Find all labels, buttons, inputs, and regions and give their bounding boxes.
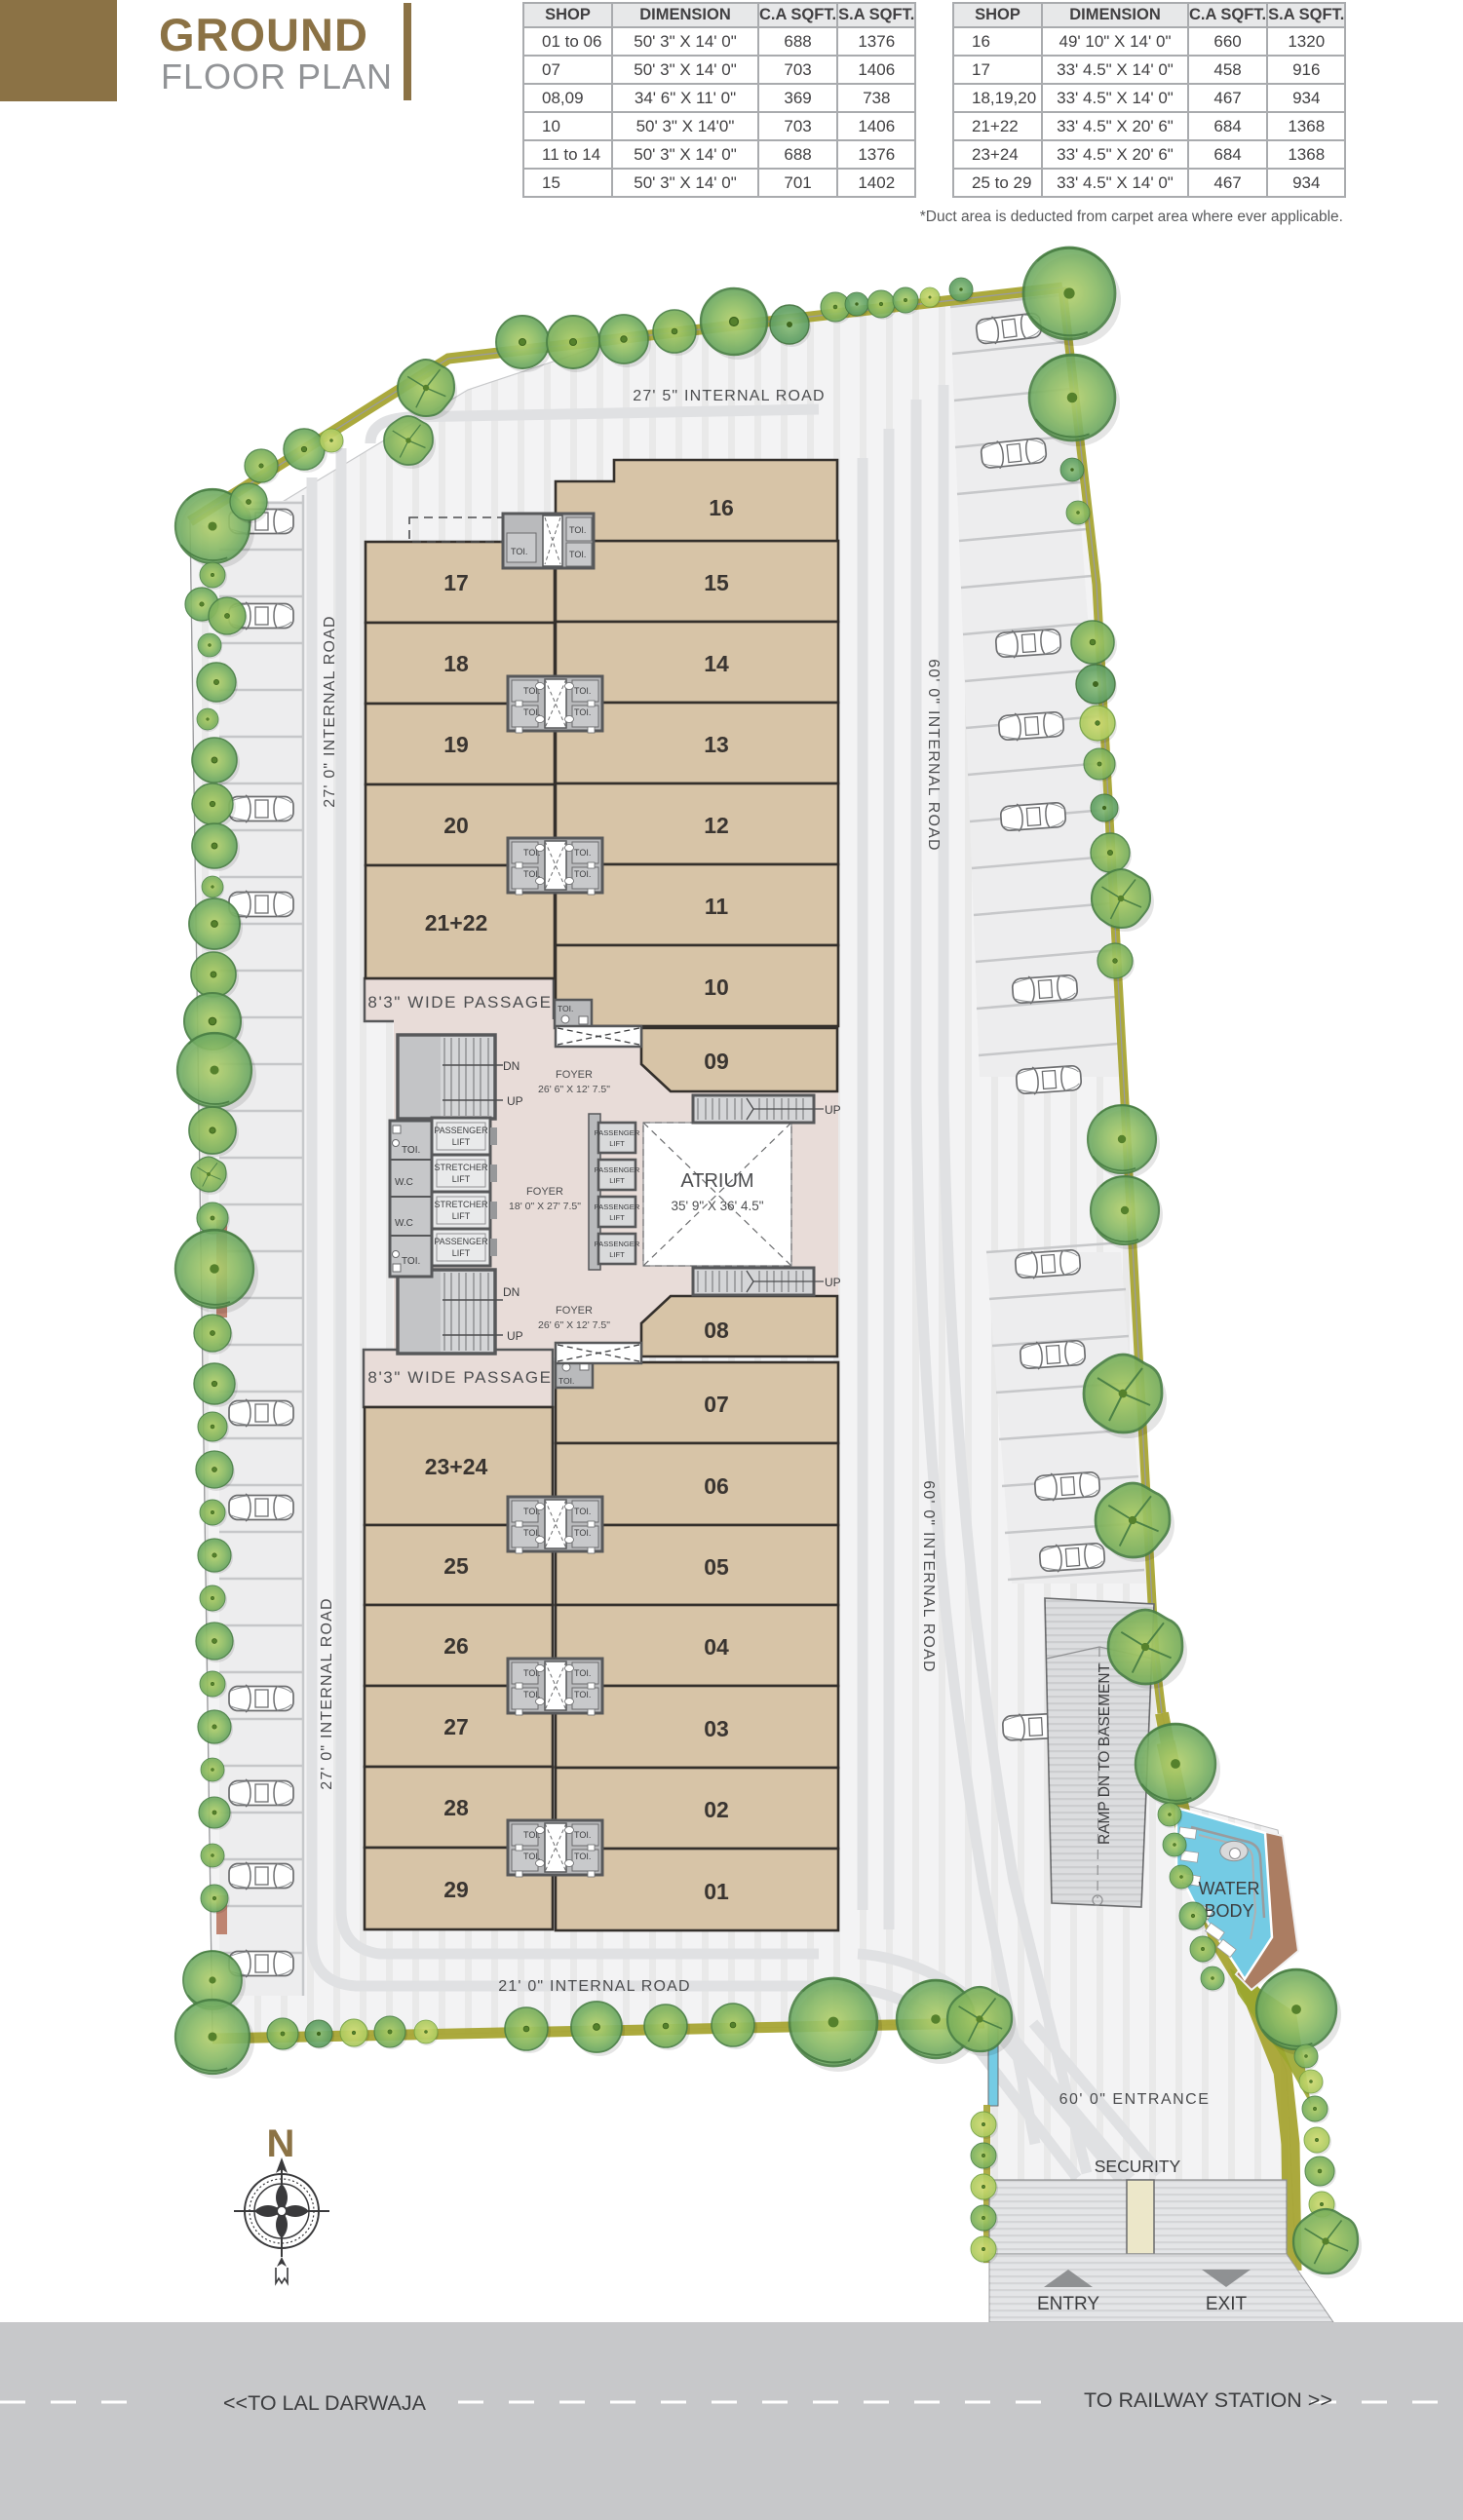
svg-text:PASSENGER: PASSENGER — [595, 1165, 640, 1174]
svg-text:TOI.: TOI. — [574, 1830, 591, 1840]
svg-text:ENTRY: ENTRY — [1037, 2294, 1099, 2314]
svg-text:26: 26 — [443, 1633, 469, 1659]
svg-text:TOI.: TOI. — [574, 848, 591, 858]
svg-text:DN: DN — [503, 1285, 520, 1299]
svg-text:TOI.: TOI. — [574, 707, 591, 717]
svg-text:TOI.: TOI. — [523, 1528, 540, 1538]
svg-text:TOI.: TOI. — [523, 707, 540, 717]
svg-text:STRETCHER: STRETCHER — [434, 1200, 488, 1209]
svg-text:FOYER: FOYER — [526, 1186, 563, 1198]
svg-text:TOI.: TOI. — [574, 1852, 591, 1861]
svg-text:12: 12 — [704, 813, 729, 838]
svg-text:15: 15 — [704, 570, 729, 595]
svg-text:25: 25 — [443, 1553, 469, 1579]
svg-text:DN: DN — [503, 1059, 520, 1073]
svg-text:10: 10 — [704, 974, 729, 1000]
svg-text:05: 05 — [704, 1554, 729, 1580]
svg-text:ATRIUM: ATRIUM — [680, 1170, 753, 1192]
svg-text:TOI.: TOI. — [523, 1830, 540, 1840]
svg-text:14: 14 — [704, 651, 729, 676]
svg-text:35' 9" X 36' 4.5": 35' 9" X 36' 4.5" — [671, 1199, 763, 1213]
svg-text:11: 11 — [705, 894, 729, 919]
svg-text:60' 0" INTERNAL ROAD: 60' 0" INTERNAL ROAD — [920, 1480, 937, 1673]
svg-text:UP: UP — [507, 1094, 523, 1108]
svg-text:LIFT: LIFT — [452, 1211, 471, 1221]
svg-text:TOI.: TOI. — [574, 1690, 591, 1699]
svg-text:PASSENGER: PASSENGER — [434, 1237, 488, 1246]
svg-text:TOI.: TOI. — [523, 686, 540, 696]
svg-text:EXIT: EXIT — [1206, 2294, 1248, 2314]
svg-text:04: 04 — [704, 1634, 729, 1660]
svg-text:07: 07 — [704, 1392, 729, 1417]
svg-text:PASSENGER: PASSENGER — [595, 1203, 640, 1211]
svg-text:21+22: 21+22 — [425, 910, 488, 935]
svg-text:28: 28 — [443, 1795, 469, 1820]
svg-text:01: 01 — [704, 1879, 729, 1904]
svg-text:18: 18 — [443, 651, 469, 676]
svg-text:TOI.: TOI. — [569, 550, 586, 559]
svg-text:LIFT: LIFT — [609, 1213, 625, 1222]
svg-text:27: 27 — [443, 1714, 469, 1739]
svg-text:27' 0" INTERNAL ROAD: 27' 0" INTERNAL ROAD — [322, 615, 338, 808]
svg-text:LIFT: LIFT — [609, 1139, 625, 1148]
svg-text:TOI.: TOI. — [402, 1145, 420, 1156]
svg-text:TOI.: TOI. — [574, 1528, 591, 1538]
svg-text:TOI.: TOI. — [511, 547, 527, 556]
svg-text:W.C: W.C — [395, 1218, 413, 1229]
svg-text:TOI.: TOI. — [523, 1852, 540, 1861]
svg-text:21' 0" INTERNAL ROAD: 21' 0" INTERNAL ROAD — [498, 1978, 691, 1995]
svg-text:27' 0" INTERNAL ROAD: 27' 0" INTERNAL ROAD — [319, 1597, 335, 1790]
svg-text:03: 03 — [704, 1716, 729, 1741]
svg-text:02: 02 — [704, 1797, 729, 1822]
svg-text:W.C: W.C — [395, 1177, 413, 1188]
svg-text:TOI.: TOI. — [574, 1507, 591, 1516]
svg-text:UP: UP — [825, 1103, 841, 1117]
svg-text:TOI.: TOI. — [569, 525, 586, 535]
svg-text:13: 13 — [704, 732, 729, 757]
svg-text:TOI.: TOI. — [558, 1004, 573, 1013]
svg-text:STRETCHER: STRETCHER — [434, 1163, 488, 1172]
svg-text:TOI.: TOI. — [574, 686, 591, 696]
svg-text:20: 20 — [443, 813, 469, 838]
svg-text:19: 19 — [443, 732, 469, 757]
svg-text:26' 6" X 12' 7.5": 26' 6" X 12' 7.5" — [538, 1084, 610, 1095]
svg-text:N: N — [267, 2122, 295, 2165]
svg-text:23+24: 23+24 — [425, 1454, 488, 1479]
svg-text:TOI.: TOI. — [402, 1256, 420, 1267]
svg-text:08: 08 — [704, 1317, 729, 1343]
svg-text:BODY: BODY — [1204, 1901, 1253, 1921]
svg-text:06: 06 — [704, 1473, 729, 1499]
svg-text:60' 0" INTERNAL ROAD: 60' 0" INTERNAL ROAD — [925, 659, 942, 852]
svg-text:TOI.: TOI. — [523, 1690, 540, 1699]
svg-text:27' 5" INTERNAL ROAD: 27' 5" INTERNAL ROAD — [633, 388, 826, 404]
svg-text:TOI.: TOI. — [523, 848, 540, 858]
svg-text:PASSENGER: PASSENGER — [595, 1240, 640, 1248]
svg-text:UP: UP — [507, 1329, 523, 1343]
svg-text:TOI.: TOI. — [574, 869, 591, 879]
svg-text:TOI.: TOI. — [523, 1668, 540, 1678]
svg-text:WATER: WATER — [1199, 1879, 1260, 1898]
svg-text:FOYER: FOYER — [556, 1305, 593, 1317]
svg-text:LIFT: LIFT — [609, 1176, 625, 1185]
svg-text:TOI.: TOI. — [523, 869, 540, 879]
svg-text:LIFT: LIFT — [452, 1137, 471, 1147]
svg-text:LIFT: LIFT — [452, 1248, 471, 1258]
svg-text:60' 0" ENTRANCE: 60' 0" ENTRANCE — [1059, 2091, 1211, 2108]
svg-text:<<TO LAL DARWAJA: <<TO LAL DARWAJA — [223, 2391, 427, 2415]
svg-text:FOYER: FOYER — [556, 1069, 593, 1081]
svg-text:8'3" WIDE PASSAGE: 8'3" WIDE PASSAGE — [367, 1368, 552, 1387]
svg-text:29: 29 — [443, 1877, 469, 1902]
svg-text:LIFT: LIFT — [452, 1174, 471, 1184]
svg-text:PASSENGER: PASSENGER — [434, 1126, 488, 1135]
svg-text:09: 09 — [704, 1049, 729, 1074]
svg-text:8'3" WIDE PASSAGE: 8'3" WIDE PASSAGE — [367, 993, 552, 1012]
svg-text:18' 0" X 27' 7.5": 18' 0" X 27' 7.5" — [509, 1201, 581, 1212]
svg-text:SECURITY: SECURITY — [1095, 2157, 1181, 2176]
svg-text:TOI.: TOI. — [574, 1668, 591, 1678]
svg-text:PASSENGER: PASSENGER — [595, 1128, 640, 1137]
svg-text:26' 6" X 12' 7.5": 26' 6" X 12' 7.5" — [538, 1319, 610, 1331]
svg-text:TOI.: TOI. — [523, 1507, 540, 1516]
svg-text:LIFT: LIFT — [609, 1250, 625, 1259]
svg-text:RAMP DN TO BASEMENT: RAMP DN TO BASEMENT — [1097, 1662, 1113, 1845]
svg-text:17: 17 — [443, 570, 469, 595]
svg-text:TOI.: TOI. — [558, 1376, 574, 1386]
svg-text:TO RAILWAY STATION >>: TO RAILWAY STATION >> — [1084, 2388, 1332, 2412]
svg-text:16: 16 — [709, 495, 734, 520]
svg-text:UP: UP — [825, 1276, 841, 1289]
